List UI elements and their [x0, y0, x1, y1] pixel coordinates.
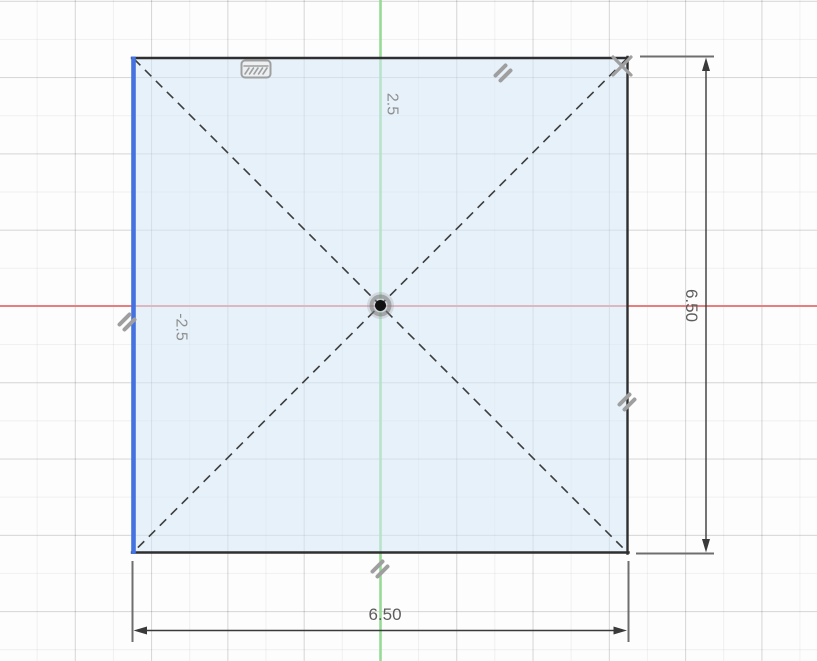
sketch-canvas[interactable]: 6.50 6.50 2.5 -2.5: [0, 0, 817, 661]
dimension-height-value[interactable]: 6.50: [682, 289, 701, 322]
arrow-down-icon: [702, 539, 710, 553]
dimension-width-value[interactable]: 6.50: [368, 605, 401, 624]
axis-label-x: -2.5: [173, 313, 190, 341]
origin-point-icon[interactable]: [367, 292, 394, 319]
arrow-left-icon: [134, 627, 148, 635]
fixed-constraint-icon[interactable]: [242, 61, 271, 78]
arrow-right-icon: [614, 627, 628, 635]
axis-label-y: 2.5: [384, 93, 401, 115]
arrow-up-icon: [702, 58, 710, 72]
